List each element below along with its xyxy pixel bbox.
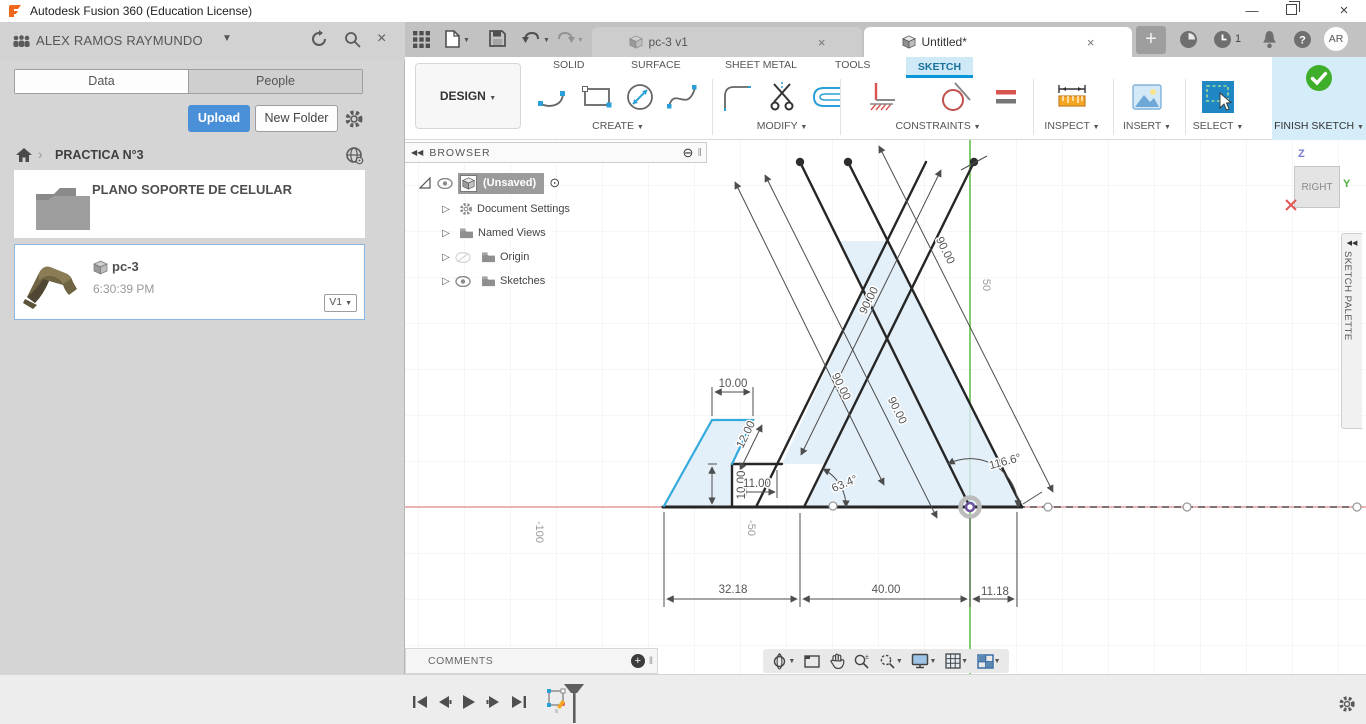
browser-node-named-views[interactable]: ▷ Named Views [439,222,552,244]
tab-people[interactable]: People [188,70,362,93]
avatar-initials: AR [1329,33,1344,45]
refresh-icon[interactable] [310,30,328,48]
comments-grip-icon[interactable]: ‖ [649,656,653,667]
viewcube[interactable]: RIGHT [1294,166,1340,208]
active-component-radio-icon[interactable]: ⊙ [549,175,560,191]
folder-name: PLANO SOPORTE DE CELULAR [92,182,292,197]
panel-close-icon[interactable]: × [377,30,386,48]
folder-icon [34,186,90,230]
axis-label-xm100: -100 [533,521,545,543]
inspect-caret-icon: ▼ [1093,124,1100,131]
browser-node-document-settings[interactable]: ▷ Document Settings [439,198,576,220]
tab-surface[interactable]: SURFACE [631,59,681,71]
viewcube-face-label: RIGHT [1301,182,1332,193]
group-separator [840,79,841,135]
modify-label: MODIFY [757,120,798,132]
group-insert[interactable]: INSERT ▼ [1123,120,1171,132]
job-status-count: 1 [1235,33,1241,45]
browser-root-row[interactable]: (Unsaved) ⊙ [419,172,560,194]
tab-sheet-metal[interactable]: SHEET METAL [725,59,797,71]
insert-label: INSERT [1123,120,1161,132]
folder-icon [459,227,474,239]
search-icon[interactable] [344,31,361,48]
timeline-step-back-button[interactable] [437,695,452,709]
data-people-tabs: Data People [14,69,363,94]
user-avatar[interactable]: AR [1323,26,1349,52]
offset-tool-icon[interactable] [810,80,844,114]
folder-icon [481,275,496,287]
view-nav-toolbar: ▼ ± ▼ ▼ ▼ ▼ [763,649,1009,673]
root-node-label: (Unsaved) [483,177,536,189]
data-panel: ALEX RAMOS RAYMUNDO ▼ × Data People Uplo… [0,22,405,674]
node-label: Document Settings [477,203,570,215]
title-bar: Autodesk Fusion 360 (Education License) … [0,0,1366,22]
constraints-label: CONSTRAINTS [895,120,970,132]
breadcrumb: › PRACTICA N°3 [0,144,405,168]
spline-tool-icon[interactable] [665,80,699,114]
trim-tool-icon[interactable] [766,80,800,114]
comments-title: COMMENTS [428,655,493,667]
tab-doc-pc3-close-icon[interactable]: × [818,35,826,50]
group-inspect[interactable]: INSPECT ▼ [1044,120,1099,132]
axis-label-xm50: -50 [745,520,757,536]
look-at-tool[interactable] [804,654,820,669]
design-name: pc-3 [112,259,139,274]
expand-palette-icon[interactable]: ◀◀ [1342,239,1362,247]
design-timestamp: 6:30:39 PM [93,282,154,296]
extensions-icon[interactable] [1179,30,1198,49]
workspace-switcher[interactable]: DESIGN ▼ [415,63,521,129]
zoom-window-tool[interactable]: ▼ [879,653,903,670]
help-icon[interactable]: ? [1293,30,1312,49]
breadcrumb-chevron-icon: › [38,146,43,162]
browser-header[interactable]: ◀◀ BROWSER ⊖ ‖ [405,142,707,163]
design-item-card[interactable]: pc-3 6:30:39 PM V1 ▼ [14,244,365,320]
new-tab-button[interactable]: + [1136,26,1166,54]
node-label: Origin [500,251,529,263]
ribbon-toolbar: DESIGN ▼ SOLID SURFACE SHEET METAL TOOLS… [405,57,1366,140]
redo-icon[interactable] [557,31,575,47]
tab-doc-untitled-close-icon[interactable]: × [1087,35,1095,50]
equal-constraint-icon[interactable] [989,80,1023,114]
timeline-bar [0,674,1366,724]
folder-icon [481,251,496,263]
group-modify[interactable]: MODIFY ▼ [757,120,808,132]
tangent-constraint-icon[interactable] [939,80,973,114]
undo-icon[interactable] [522,31,540,47]
display-settings-tool[interactable]: ▼ [911,653,936,669]
constraints-caret-icon: ▼ [974,124,981,131]
display-caret-icon[interactable]: ▼ [929,658,936,665]
axis-label-y50: 50 [980,279,992,291]
save-icon[interactable] [489,30,506,47]
close-button[interactable]: × [1330,2,1358,20]
finish-label-text: FINISH SKETCH [1274,120,1354,132]
viewports-tool[interactable]: ▼ [977,654,1001,669]
browser-panel: ◀◀ BROWSER ⊖ ‖ (Unsaved) ⊙ ▷ Document Se… [405,142,707,163]
browser-minus-icon[interactable]: ⊖ [683,145,694,161]
browser-title: BROWSER [429,147,490,159]
grid-caret-icon[interactable]: ▼ [961,658,968,665]
timeline-play-button[interactable] [461,694,477,710]
timeline-go-start-button[interactable] [412,695,428,709]
circle-tool-icon[interactable] [623,80,657,114]
app-grid-icon[interactable] [413,31,430,48]
vertical-constraint-icon[interactable] [867,80,901,114]
zoom-tool[interactable]: ± [853,653,870,670]
timeline-position-marker[interactable] [563,683,585,723]
dim-step-width[interactable]: 11.00 [743,478,771,490]
gear-icon [459,202,473,216]
globe-share-icon[interactable] [345,146,364,165]
file-menu-caret-icon[interactable]: ▼ [463,37,470,44]
version-label: V1 [329,296,342,308]
measure-tool-icon[interactable] [1055,80,1089,114]
origin-point[interactable] [966,503,974,511]
root-cube-icon [460,175,477,192]
viewcube-z-axis-label: Z [1298,148,1305,160]
node-label: Sketches [500,275,545,287]
sketch-palette-title: SKETCH PALETTE [1342,251,1353,341]
group-constraints[interactable]: CONSTRAINTS ▼ [895,120,980,132]
select-tool-icon[interactable] [1201,80,1235,114]
user-menu[interactable]: ALEX RAMOS RAYMUNDO [36,33,203,48]
expand-closed-icon[interactable]: ▷ [439,204,453,215]
grid-layout-tool[interactable]: ▼ [945,653,968,669]
insert-image-icon[interactable] [1130,80,1164,114]
viewports-caret-icon[interactable]: ▼ [994,658,1001,665]
minimize-button[interactable]: — [1238,2,1266,20]
sketch-drawing: 10.00 12.00 10.00 11.00 90.00 90.00 90.0… [405,140,1366,674]
folder-card[interactable]: PLANO SOPORTE DE CELULAR [14,170,365,238]
tab-data[interactable]: Data [15,70,188,93]
version-dropdown[interactable]: V1 ▼ [324,294,357,312]
timeline-go-end-button[interactable] [511,695,527,709]
rectangle-tool-icon[interactable] [580,80,614,114]
sketch-palette-collapsed[interactable]: ◀◀ SKETCH PALETTE [1341,233,1362,429]
timeline-settings-gear-icon[interactable] [1338,695,1356,713]
expand-closed-icon[interactable]: ▷ [439,252,453,263]
breadcrumb-project[interactable]: PRACTICA N°3 [55,148,144,162]
team-icon [12,34,30,48]
finish-sketch-button[interactable]: FINISH SKETCH ▼ [1272,57,1366,140]
modify-caret-icon: ▼ [800,124,807,131]
finish-check-icon [1305,64,1333,92]
group-separator [1033,79,1034,135]
insert-caret-icon: ▼ [1164,124,1171,131]
group-separator [712,79,713,135]
select-label: SELECT [1193,120,1234,132]
data-settings-gear-icon[interactable] [344,109,364,129]
sketch-tab-underline [906,75,973,78]
browser-node-origin[interactable]: ▷ Origin [439,246,535,268]
workspace-caret-icon: ▼ [489,95,496,102]
tab-doc-pc3-label: pc-3 v1 [649,35,688,49]
sketch-canvas[interactable]: 10.00 12.00 10.00 11.00 90.00 90.00 90.0… [405,140,1366,674]
user-menu-caret-icon[interactable]: ▼ [222,33,232,44]
group-separator [1113,79,1114,135]
expand-closed-icon[interactable]: ▷ [439,276,453,287]
tab-tools[interactable]: TOOLS [835,59,870,71]
visibility-off-icon[interactable] [455,252,471,263]
orbit-tool[interactable]: ▼ [771,653,795,670]
visibility-eye-icon[interactable] [437,178,453,189]
add-comment-icon[interactable]: + [631,654,645,668]
viewcube-x-axis-marker [1284,198,1298,212]
workspace-label: DESIGN [440,89,486,103]
doc-cube-icon [902,35,916,49]
version-caret-icon: ▼ [345,300,352,307]
expand-closed-icon[interactable]: ▷ [439,228,453,239]
svg-text:±: ± [865,654,869,661]
tab-sketch-active[interactable]: SKETCH [906,57,973,77]
doc-cube-icon [629,35,643,49]
viewcube-y-axis-label: Y [1343,178,1350,190]
document-bar: ▼ ▼ ▼ pc-3 v1 × Untitled* × + 1 ? AR [405,22,1366,57]
dim-bottom-right[interactable]: 11.18 [981,586,1009,598]
create-caret-icon: ▼ [637,124,644,131]
comments-bar[interactable]: COMMENTS + ‖ [405,648,658,674]
timeline-step-forward-button[interactable] [486,695,501,709]
home-icon[interactable] [16,148,32,163]
upload-button[interactable]: Upload [188,105,250,132]
window-title: Autodesk Fusion 360 (Education License) [30,4,252,18]
restore-button[interactable] [1286,4,1297,15]
job-status-clock-icon[interactable] [1213,30,1232,49]
new-folder-button[interactable]: New Folder [255,105,338,132]
design-thumbnail [19,251,85,313]
tab-solid[interactable]: SOLID [553,59,585,71]
dim-bottom-left[interactable]: 32.18 [719,584,748,596]
redo-caret-icon[interactable]: ▼ [577,37,584,44]
fillet-tool-icon[interactable] [720,80,754,114]
pan-tool[interactable] [829,653,845,669]
group-create[interactable]: CREATE ▼ [592,120,644,132]
collapse-browser-icon[interactable]: ◀◀ [411,148,423,157]
tab-doc-pc3[interactable]: pc-3 v1 × [592,27,862,57]
finish-sketch-label: FINISH SKETCH ▼ [1274,120,1364,132]
dim-top-width[interactable]: 10.00 [719,378,748,390]
zoom-window-caret-icon[interactable]: ▼ [896,658,903,665]
file-icon[interactable] [445,30,460,48]
browser-node-sketches[interactable]: ▷ Sketches [439,270,551,292]
undo-caret-icon[interactable]: ▼ [543,37,550,44]
expand-open-icon[interactable] [419,177,432,190]
line-tool-icon[interactable] [536,80,570,114]
design-cube-icon [93,260,108,275]
root-node-chip[interactable]: (Unsaved) [458,173,544,194]
data-panel-header: ALEX RAMOS RAYMUNDO ▼ × [0,22,405,60]
create-label: CREATE [592,120,634,132]
group-separator [1185,79,1186,135]
group-select[interactable]: SELECT ▼ [1193,120,1244,132]
tab-doc-untitled-label: Untitled* [922,35,967,49]
dim-bottom-mid[interactable]: 40.00 [872,584,901,596]
orbit-caret-icon[interactable]: ▼ [788,658,795,665]
tab-doc-untitled[interactable]: Untitled* × [864,27,1132,57]
select-caret-icon: ▼ [1236,124,1243,131]
fusion-logo-icon [8,4,22,18]
visibility-eye-icon[interactable] [455,276,471,287]
notifications-bell-icon[interactable] [1261,30,1278,49]
svg-text:?: ? [1299,35,1306,47]
node-label: Named Views [478,227,546,239]
inspect-label: INSPECT [1044,120,1089,132]
browser-grip-icon[interactable]: ‖ [697,147,702,159]
finish-caret-icon: ▼ [1357,124,1364,131]
fusion360-window: Autodesk Fusion 360 (Education License) … [0,0,1366,724]
